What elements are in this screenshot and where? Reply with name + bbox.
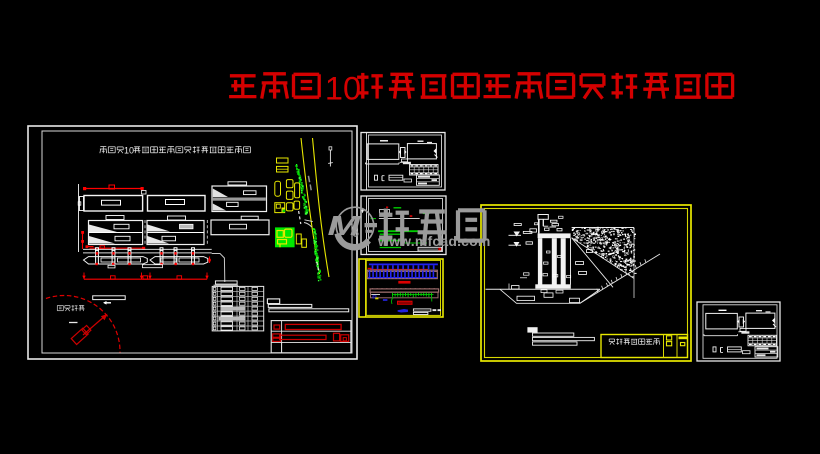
svg-text:www.mfcad.com: www.mfcad.com xyxy=(377,233,491,249)
svg-text:10: 10 xyxy=(325,71,361,107)
svg-text:M: M xyxy=(328,211,362,242)
svg-text:10: 10 xyxy=(124,146,134,156)
